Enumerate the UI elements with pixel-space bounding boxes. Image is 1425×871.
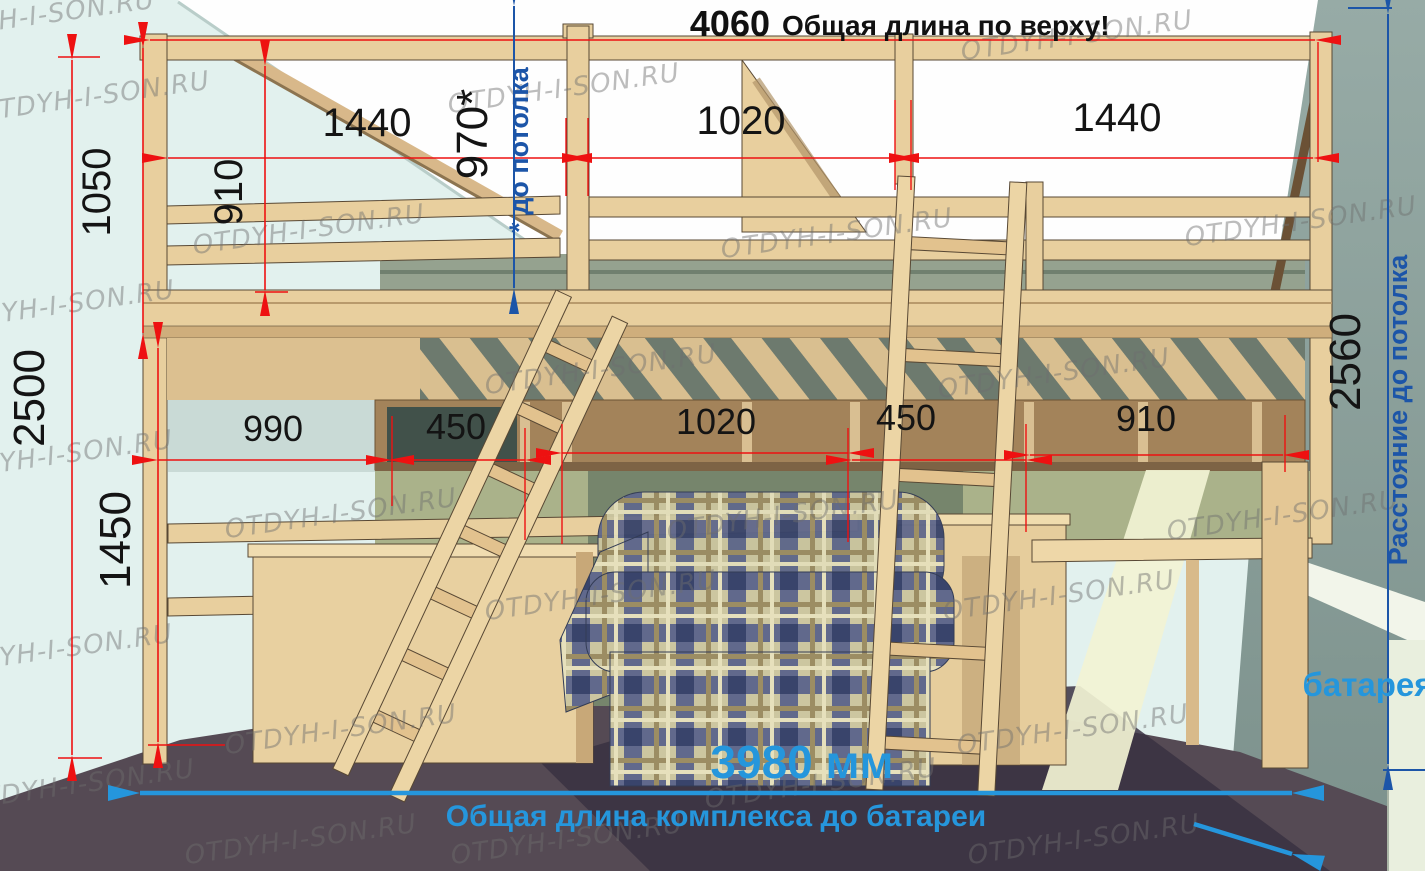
dim-right-height: 2560 [1321, 313, 1370, 411]
bottom-note: Общая длина комплекса до батареи [446, 800, 986, 833]
post-left [143, 34, 167, 764]
radiator-label: батарея [1302, 666, 1425, 703]
dim-top-right: 1440 [1073, 96, 1162, 140]
dim-mid-5: 910 [1116, 398, 1176, 439]
dim-left-height: 1050 [75, 148, 119, 237]
dim-ceiling-clearance: 970* [448, 89, 497, 180]
loft-bed-dimension-diagram: OTDYH-I-SON.RU OTDYH-I-SON.RU OTDYH-I-SO… [0, 0, 1425, 871]
dim-mid-4: 450 [876, 397, 936, 438]
diagram-canvas: OTDYH-I-SON.RU OTDYH-I-SON.RU OTDYH-I-SO… [0, 0, 1425, 871]
dim-rail-height: 910 [207, 159, 251, 226]
dim-total-height: 2500 [5, 349, 54, 447]
dim-top-center: 1020 [697, 99, 786, 143]
dim-top-total: 4060 [690, 3, 770, 44]
post-right [1310, 32, 1332, 544]
dim-bottom-total: 3980 мм [710, 736, 893, 788]
ceiling-note: * до потолка [504, 66, 534, 233]
dim-mid-1: 990 [243, 408, 303, 449]
dim-mid-2: 450 [426, 406, 486, 447]
dim-top-left: 1440 [323, 101, 412, 145]
page-title: Общая длина по верху! [782, 10, 1110, 41]
dim-under-bed-height: 1450 [91, 491, 140, 589]
right-height-note: Расстояние до потолка [1383, 254, 1413, 565]
dim-mid-3: 1020 [676, 401, 756, 442]
